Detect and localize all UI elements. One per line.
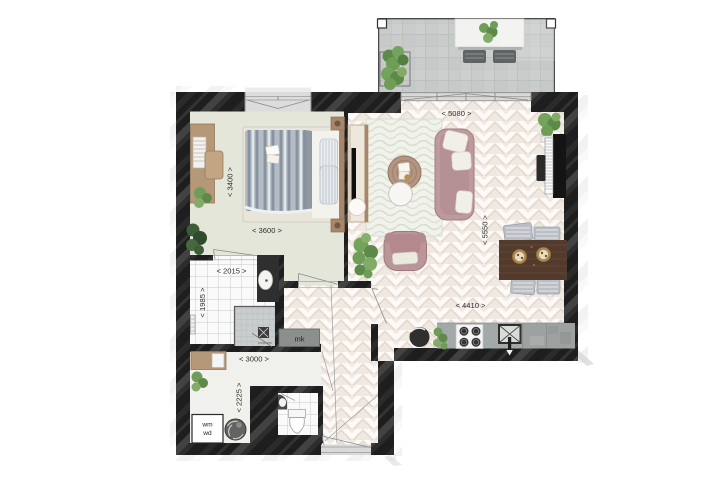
svg-text:< 3400 >: < 3400 > <box>226 166 235 197</box>
svg-text:< 4410 >: < 4410 > <box>456 301 487 310</box>
svg-text:< 1985 >: < 1985 > <box>198 287 207 318</box>
svg-text:< 2015 >: < 2015 > <box>217 267 248 276</box>
svg-text:< 5550 >: < 5550 > <box>481 214 490 245</box>
svg-text:mk: mk <box>295 335 305 344</box>
svg-text:< 2225 >: < 2225 > <box>235 382 244 413</box>
svg-text:< 5080 >: < 5080 > <box>442 109 473 118</box>
svg-text:wd: wd <box>202 430 212 437</box>
svg-text:wm: wm <box>201 422 213 429</box>
svg-text:< 3600 >: < 3600 > <box>252 226 283 235</box>
svg-text:< 3000 >: < 3000 > <box>239 355 270 364</box>
